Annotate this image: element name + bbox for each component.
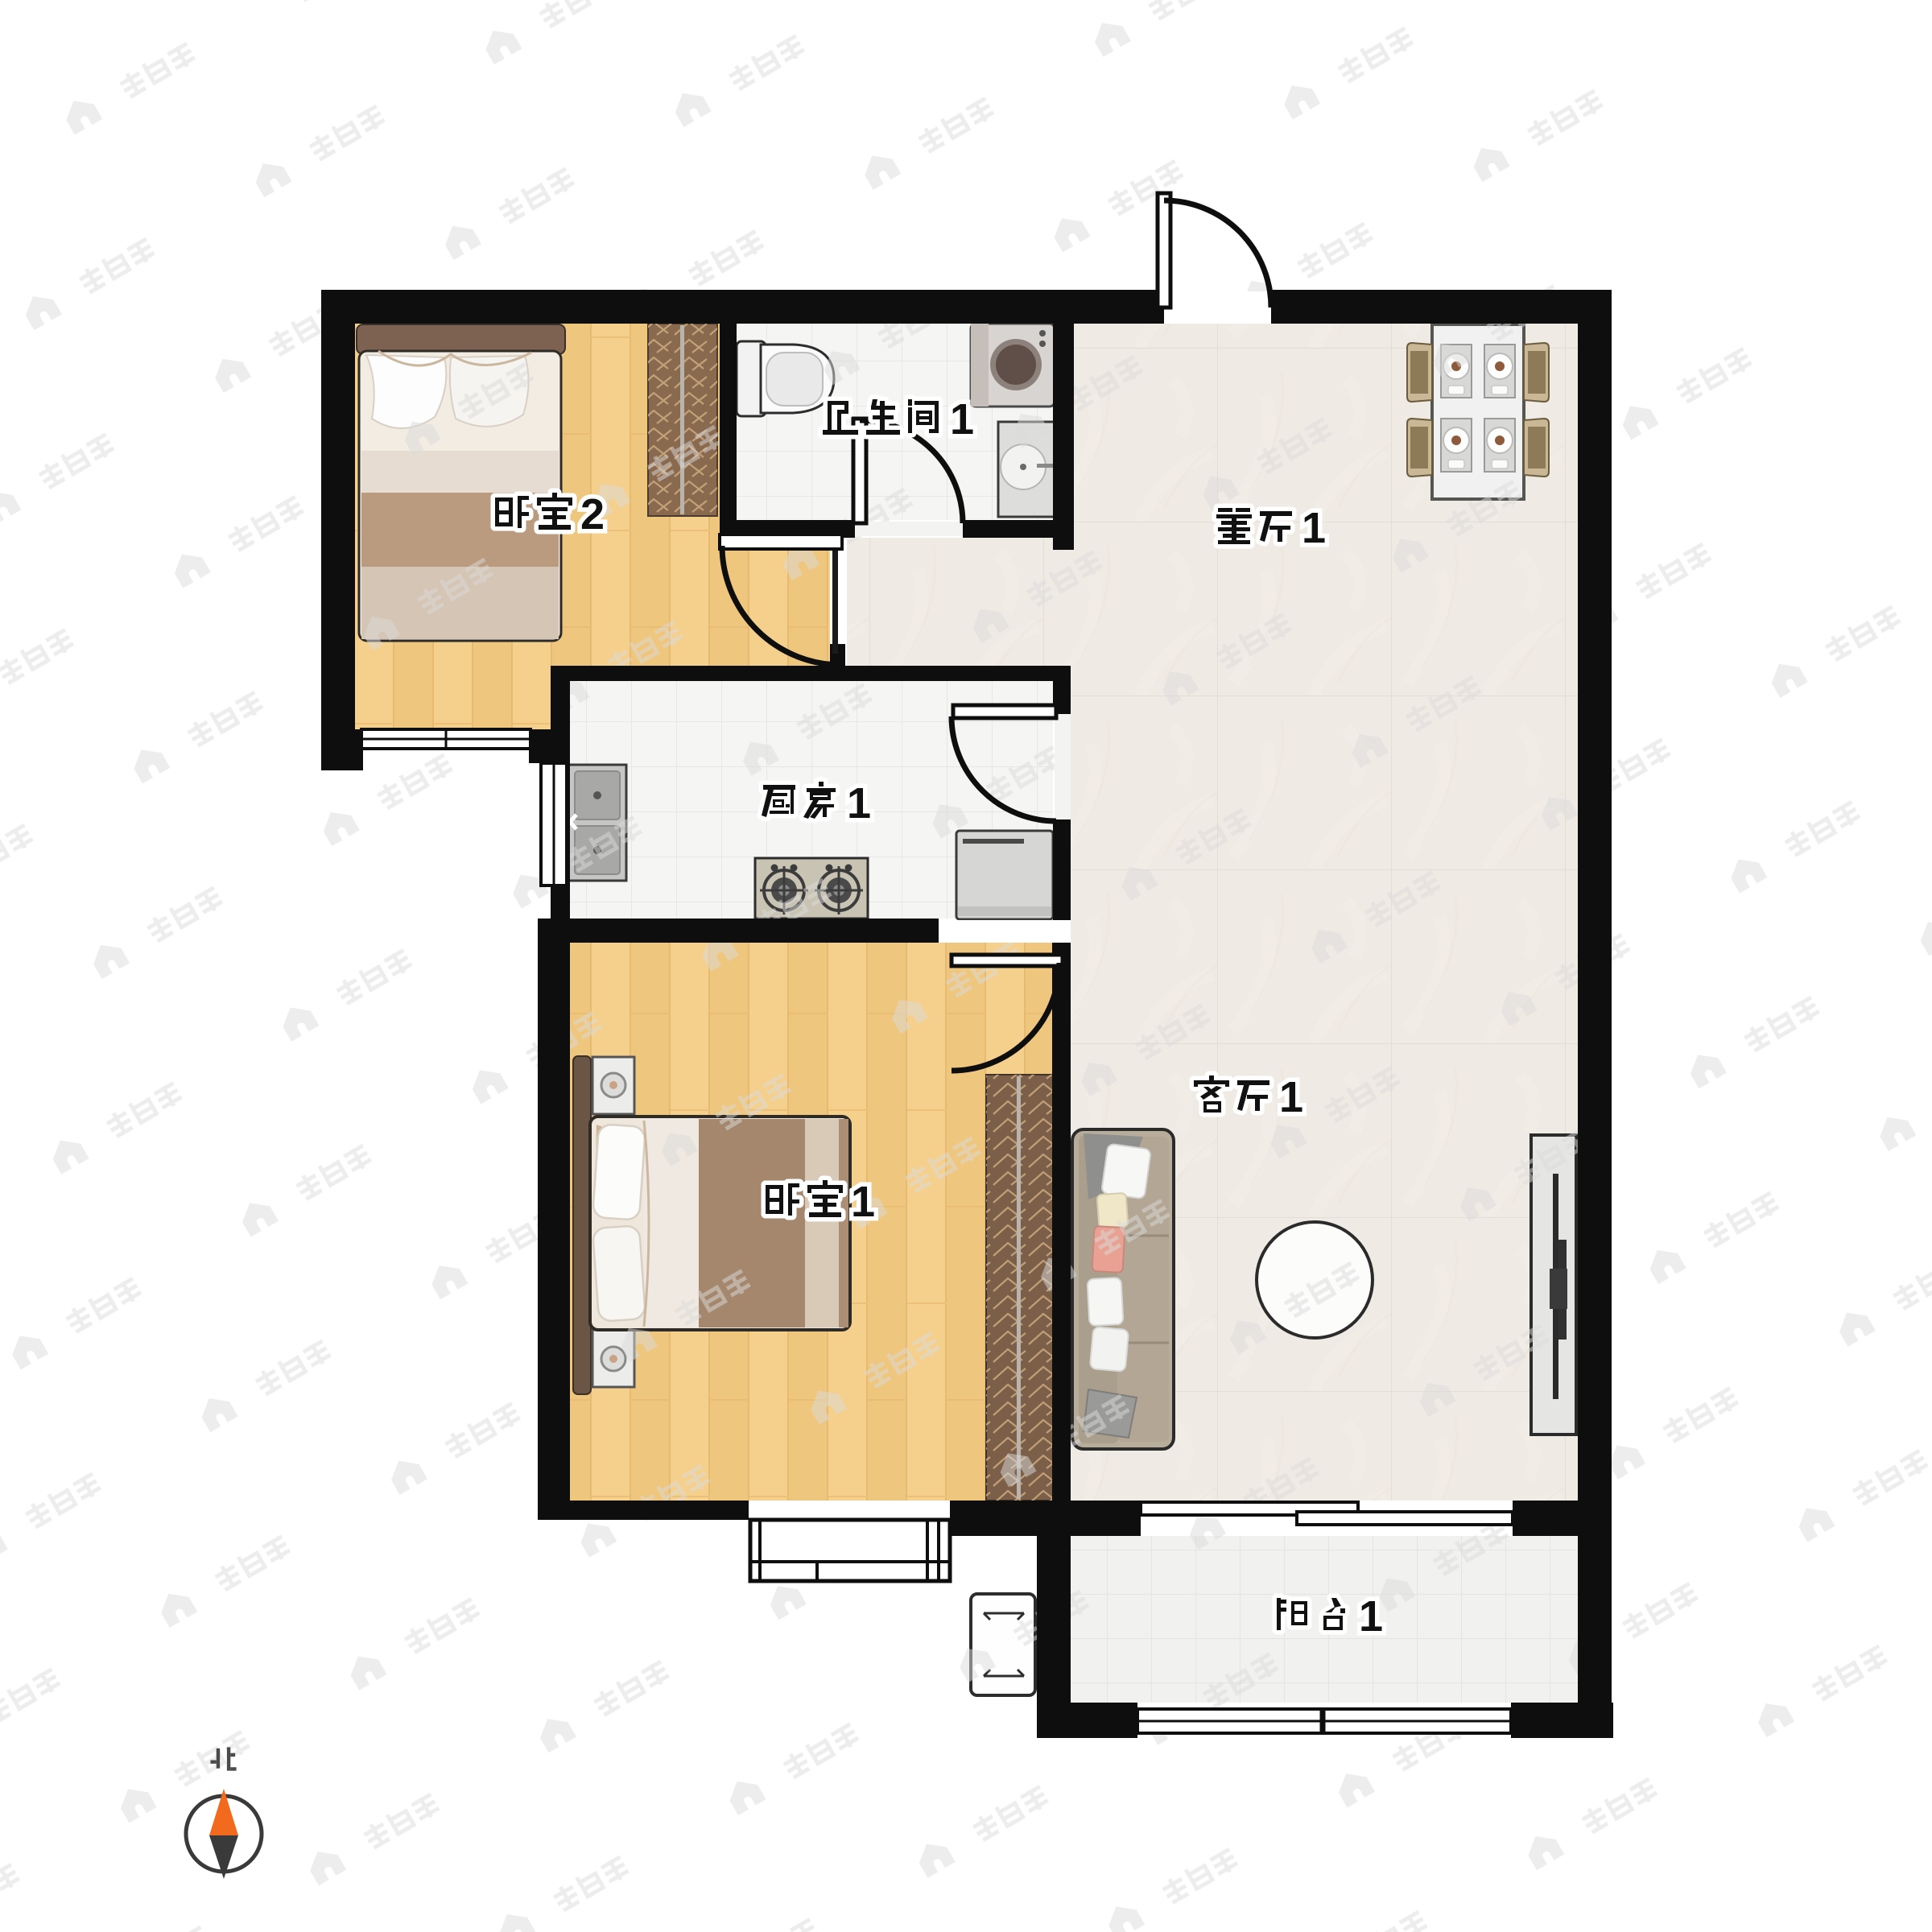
- svg-text:1: 1: [847, 779, 871, 828]
- svg-text:1: 1: [950, 395, 974, 444]
- svg-text:1: 1: [1302, 504, 1326, 552]
- svg-text:2: 2: [580, 490, 605, 539]
- svg-text:1: 1: [1359, 1592, 1383, 1641]
- svg-text:1: 1: [851, 1178, 875, 1226]
- svg-text:1: 1: [1279, 1073, 1303, 1121]
